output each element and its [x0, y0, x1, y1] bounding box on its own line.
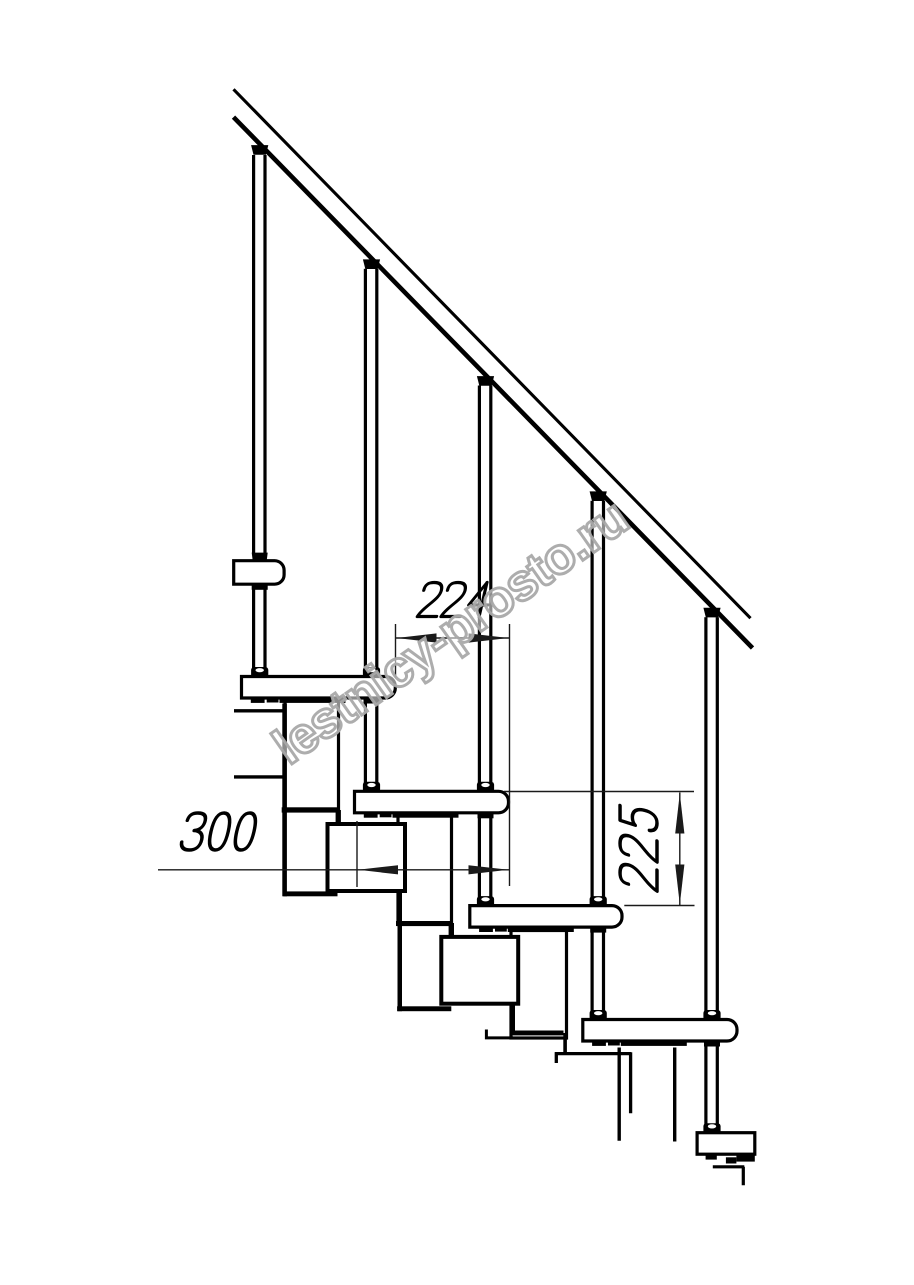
- svg-text:lestnicy-prosto.ru: lestnicy-prosto.ru: [263, 488, 639, 775]
